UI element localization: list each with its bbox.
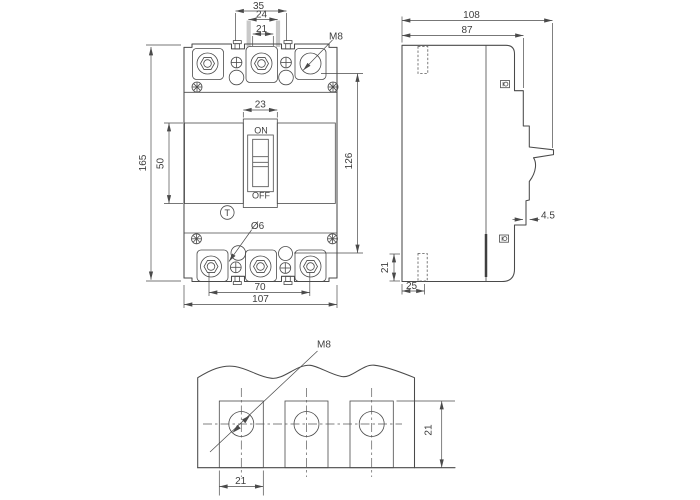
detail-dim-21w-label: 21 [235,476,247,487]
m8-tapped-hole [300,53,321,74]
hex-bolt [201,256,222,277]
hex-bolt [197,53,218,74]
dim-70-label: 70 [254,282,266,293]
trip-button-label: T [225,208,231,218]
top-terminals [193,47,327,83]
switch-off-label: OFF [252,191,270,201]
drawing-canvas: ON OFF T 35 24 [0,0,700,500]
cover-left-panel [185,123,244,204]
dim-24-label: 24 [256,10,268,21]
top-pole-screws [229,57,293,85]
front-view: ON OFF T 35 24 [138,1,363,308]
cover-right-panel [277,123,335,204]
case-screw [328,234,338,244]
switch-on-label: ON [254,126,268,136]
latch-detail-bottom [500,235,509,242]
barrier-band-left [247,21,251,48]
top-tab-right [284,41,292,49]
dim-25-label: 25 [406,281,418,292]
dim-107-label: 107 [252,294,269,305]
hex-bolt [251,53,272,74]
hex-bolt [300,256,321,277]
dim-21-label: 21 [256,24,268,35]
dim-m8-label: M8 [329,32,343,43]
switch-bezel [248,135,274,192]
bottom-tab-right [284,276,292,284]
bottom-terminals [197,250,326,282]
case-screw [192,82,202,92]
mccb-dimension-drawing: ON OFF T 35 24 [0,0,700,500]
dim-165-label: 165 [138,154,149,171]
terminal-detail-view: M8 21 21 [198,340,455,496]
bottom-tab-left [233,276,241,284]
dim-4p5-label: 4.5 [541,211,555,222]
dim-108-label: 108 [463,10,480,21]
barrier-band-right [276,21,280,48]
latch-detail-top [501,81,510,88]
top-tab-left [233,41,241,49]
switch-toggle[interactable] [253,139,269,186]
dim-side-21-label: 21 [380,262,391,274]
detail-dim-21h-label: 21 [424,424,435,436]
mount-hole [279,247,293,261]
side-view: 108 87 4.5 21 25 [380,10,555,295]
side-dimensions: 108 87 4.5 21 25 [380,10,555,295]
case-screw [328,82,338,92]
hex-bolt [250,256,271,277]
cover-and-switch: ON OFF T [185,119,336,219]
detail-dimensions: M8 21 21 [210,340,455,496]
dim-50-label: 50 [156,158,167,170]
dim-hole6-label: Ø6 [251,221,265,232]
dim-87-label: 87 [461,25,473,36]
detail-m8-label: M8 [317,340,331,351]
dim-23-label: 23 [255,100,267,111]
dim-126-label: 126 [344,152,355,169]
hidden-hole-top [418,47,428,74]
case-screw [192,234,202,244]
hidden-hole-bottom [418,254,427,282]
side-profile [402,45,554,281]
